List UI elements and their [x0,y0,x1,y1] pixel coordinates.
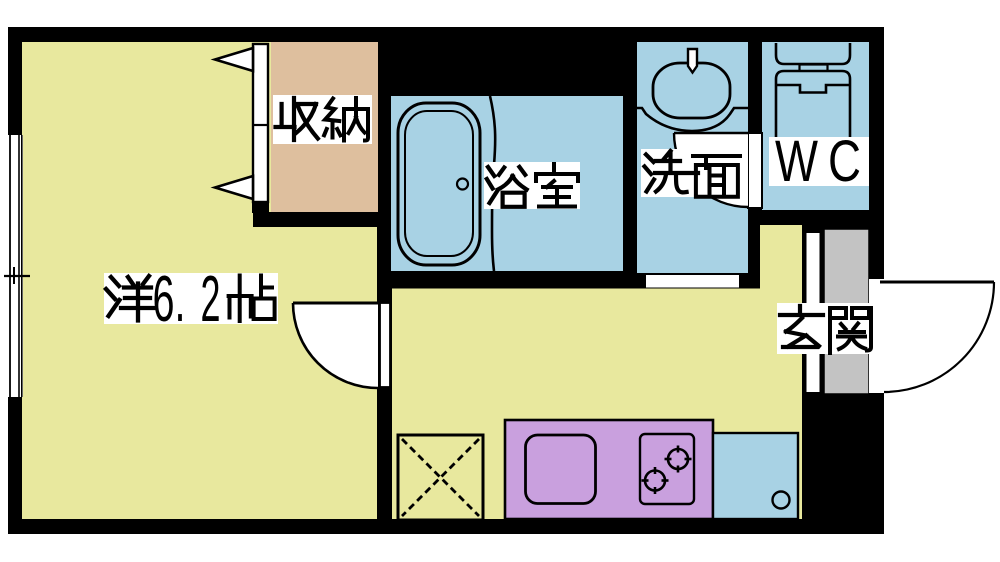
svg-text:C: C [828,129,861,194]
svg-text:2: 2 [201,262,221,335]
svg-text:W: W [775,129,818,194]
svg-text:6.: 6. [153,262,186,335]
